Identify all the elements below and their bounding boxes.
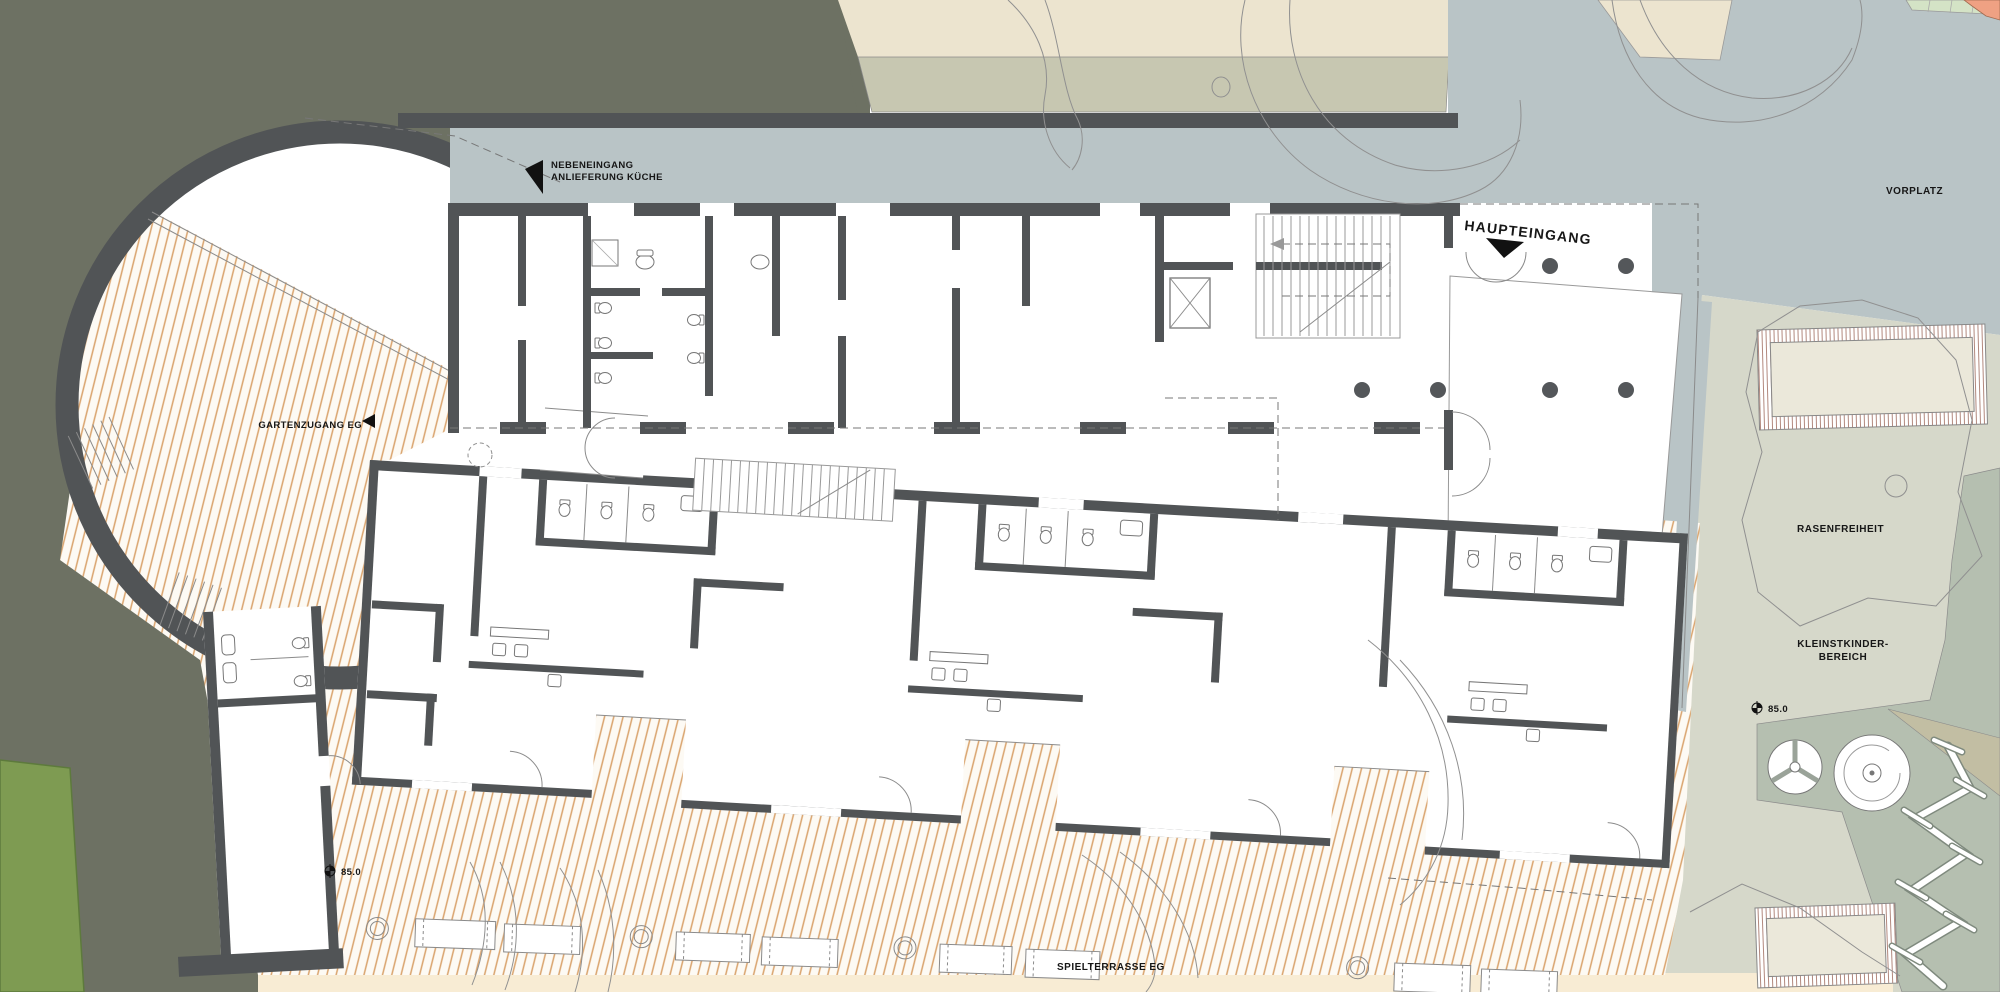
sandpit-lower [1755,903,1898,988]
terrace-stair [693,458,896,521]
side-entrance-label-1: NEBENEINGANG [551,160,633,171]
floor-plan-canvas: NEBENEINGANG ANLIEFERUNG KÜCHE HAUPTEING… [0,0,2000,992]
elevator [1170,278,1210,328]
forecourt-label: VORPLATZ [1886,186,1943,197]
garden-access-label: GARTENZUGANG EG [258,420,362,431]
level-value-garden: 85.0 [1768,704,1788,715]
garden-access-corridor [540,408,648,478]
carousel [1768,740,1822,794]
lawn-label: RASENFREIHEIT [1797,524,1884,535]
side-entrance-label-2: ANLIEFERUNG KÜCHE [551,172,663,183]
retaining-wall [398,113,1458,128]
play-terrace-label: SPIELTERRASSE EG [1057,962,1165,973]
main-stair [1256,214,1400,338]
grass-strip [0,760,84,992]
level-value-terrace: 85.0 [341,867,361,878]
toddler-area-label-2: BEREICH [1819,652,1868,663]
entrance-canopy [1448,276,1682,560]
main-entrance-arrow-icon [1486,238,1524,258]
upper-planting-bands [838,0,1453,112]
sandpit-upper [1757,324,1988,430]
main-entrance-label: HAUPTEINGANG [1464,217,1593,247]
site-plan-drawing: NEBENEINGANG ANLIEFERUNG KÜCHE HAUPTEING… [0,0,2000,992]
toddler-area-label-1: KLEINSTKINDER- [1797,639,1888,650]
roundabout [1834,735,1910,811]
